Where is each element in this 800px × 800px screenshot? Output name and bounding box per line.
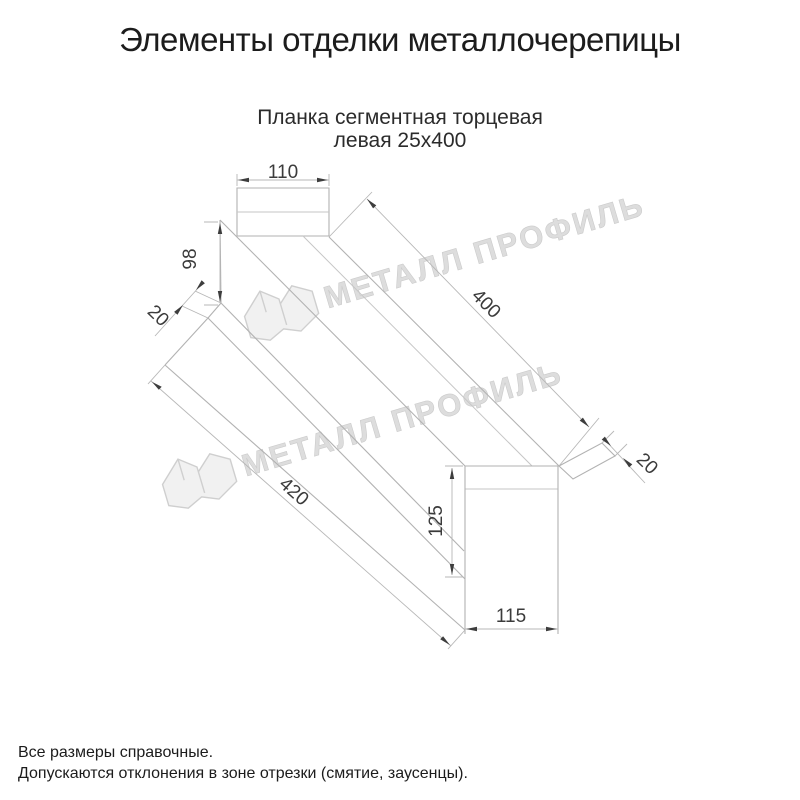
dim-110: 110 [237, 162, 329, 186]
dim-420-label: 420 [275, 474, 313, 511]
product-drawing: МЕТАЛЛ ПРОФИЛЬ МЕТАЛЛ ПРОФИЛЬ [0, 0, 800, 800]
dim-98: 98 [180, 222, 222, 305]
dim-115: 115 [465, 606, 558, 631]
watermark-1: МЕТАЛЛ ПРОФИЛЬ [239, 180, 651, 346]
dim-110-label: 110 [268, 162, 298, 183]
dim-125-label: 125 [426, 505, 447, 537]
metal-profil-logo-icon [157, 445, 240, 513]
dim-20-right: 20 [602, 431, 662, 483]
metal-profil-logo-icon [239, 277, 322, 345]
footnote-line-1: Все размеры справочные. [18, 742, 468, 763]
dim-20-left-label: 20 [143, 301, 173, 331]
right-flange [559, 443, 615, 479]
far-end-face [237, 188, 329, 236]
footnote-line-2: Допускаются отклонения в зоне отрезки (с… [18, 763, 468, 784]
watermark-text: МЕТАЛЛ ПРОФИЛЬ [238, 355, 567, 483]
dim-20-left: 20 [143, 280, 221, 336]
dim-115-label: 115 [496, 606, 526, 627]
footnotes: Все размеры справочные. Допускаются откл… [18, 742, 468, 784]
watermark-2: МЕТАЛЛ ПРОФИЛЬ [157, 348, 569, 514]
dim-20-right-label: 20 [632, 449, 662, 479]
dim-98-label: 98 [180, 248, 201, 269]
dim-400-label: 400 [467, 285, 504, 322]
dim-125: 125 [426, 466, 463, 577]
page: Элементы отделки металлочерепицы Планка … [0, 0, 800, 800]
